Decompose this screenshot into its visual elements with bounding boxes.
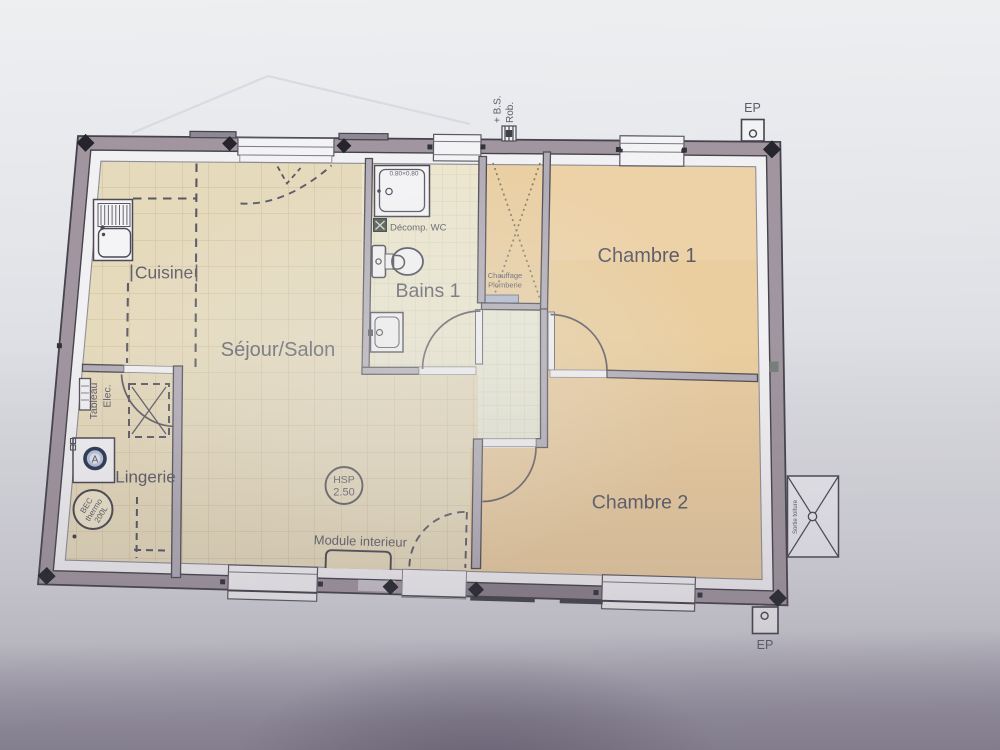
svg-text:Elec.: Elec. [102, 384, 114, 407]
svg-text:Sortie toiture: Sortie toiture [793, 499, 799, 534]
svg-text:Lingerie: Lingerie [115, 468, 176, 487]
svg-text:Bains 1: Bains 1 [395, 280, 460, 302]
svg-text:2.50: 2.50 [333, 487, 354, 499]
svg-text:Chauffage: Chauffage [488, 271, 522, 280]
svg-text:Chambre 2: Chambre 2 [592, 492, 688, 514]
svg-text:Cuisine: Cuisine [135, 263, 193, 283]
svg-text:Plomberie: Plomberie [488, 281, 522, 290]
svg-text:A: A [92, 455, 99, 466]
svg-text:Décomp. WC: Décomp. WC [390, 223, 447, 234]
svg-text:0.80×0.80: 0.80×0.80 [389, 171, 418, 178]
svg-text:+ B.S.: + B.S. [493, 95, 504, 123]
svg-text:HSP: HSP [333, 474, 355, 486]
svg-text:Module interieur: Module interieur [314, 532, 408, 550]
svg-text:Chambre 1: Chambre 1 [598, 245, 697, 267]
svg-text:Séjour/Salon: Séjour/Salon [221, 339, 336, 361]
svg-text:Rob.: Rob. [505, 102, 516, 123]
svg-text:EP: EP [757, 638, 774, 652]
svg-text:Tableau: Tableau [88, 382, 100, 419]
svg-text:EP: EP [744, 101, 761, 115]
